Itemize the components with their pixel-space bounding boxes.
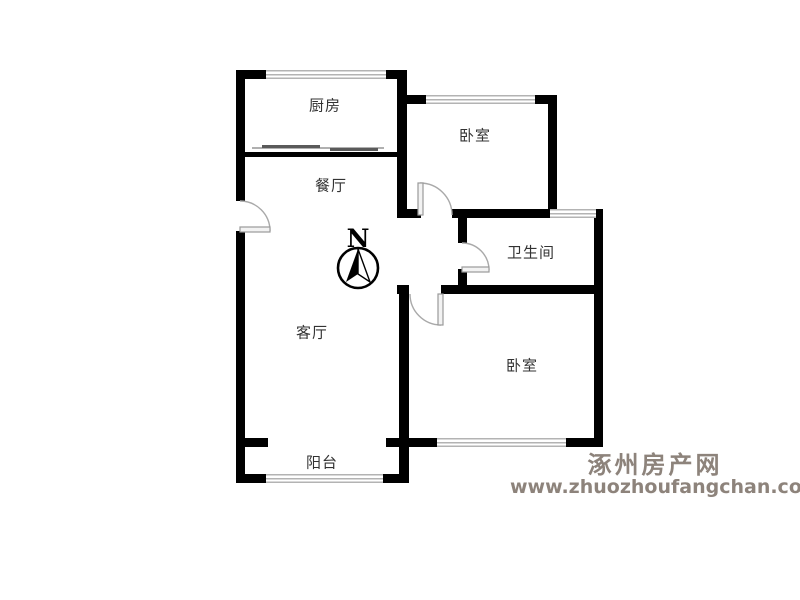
room-label-dining: 餐厅: [315, 175, 347, 196]
north-compass: N: [338, 224, 378, 288]
room-label-bathroom: 卫生间: [507, 242, 555, 263]
bedroom2-door: [410, 294, 443, 325]
room-label-bedroom-bottom: 卧室: [506, 355, 538, 376]
watermark-site-name: 涿州房产网: [510, 453, 800, 478]
room-label-balcony: 阳台: [306, 452, 338, 473]
bedroom1-door: [418, 183, 452, 215]
watermark: 涿州房产网 www.zhuozhoufangchan.com: [510, 453, 800, 498]
room-label-bedroom-top: 卧室: [459, 125, 491, 146]
compass-arrow-right: [358, 249, 370, 282]
compass-arrow-left: [346, 249, 358, 282]
room-label-kitchen: 厨房: [309, 95, 341, 116]
floorplan-canvas: N 厨房 卧室 餐厅 卫生间 客厅 卧室 阳台 涿州房产网 www.zhuozh…: [0, 0, 800, 600]
room-label-living: 客厅: [296, 322, 328, 343]
bathroom-door: [462, 243, 489, 272]
entry-door: [240, 201, 270, 232]
doors-and-compass-layer: N: [0, 0, 800, 600]
watermark-site-url: www.zhuozhoufangchan.com: [510, 478, 800, 498]
